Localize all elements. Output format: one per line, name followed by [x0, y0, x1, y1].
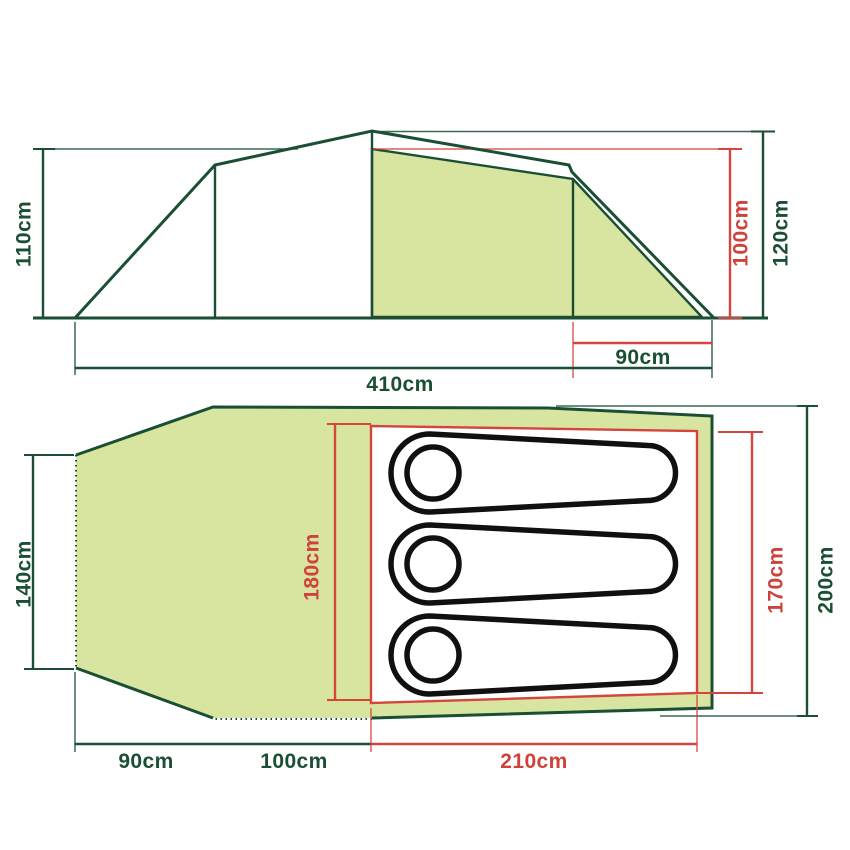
dim-porch-label: 90cm [615, 346, 670, 369]
dim-outer-width-label: 200cm [815, 546, 838, 613]
dim-porch-depth: 90cm [573, 320, 712, 378]
dim-rear-width-label: 140cm [13, 540, 36, 607]
diagram-svg: 110cm 100cm 120cm 90cm 410cm [0, 0, 850, 850]
side-view: 110cm 100cm 120cm 90cm 410cm [13, 131, 793, 396]
dim-inner-height: 100cm [718, 149, 753, 318]
tent-dimensions-diagram: 110cm 100cm 120cm 90cm 410cm [0, 0, 850, 850]
dim-left-height: 110cm [13, 149, 56, 318]
dim-inner-height-label: 100cm [730, 199, 753, 266]
side-inner-bedroom-fill [372, 149, 702, 317]
sleeping-bag-3-hood [407, 629, 459, 681]
dim-left-height-label: 110cm [13, 201, 36, 267]
dim-living-depth-label: 100cm [260, 750, 327, 773]
sleeping-bag-2-hood [407, 538, 459, 590]
dim-outer-height: 120cm [751, 132, 793, 319]
dim-bedroom-depth-label: 210cm [500, 750, 567, 773]
dim-rear-depth-label: 90cm [118, 750, 173, 773]
dim-door-side-width-label: 170cm [765, 546, 788, 613]
dim-rear-width: 140cm [13, 455, 75, 669]
dim-total-length-label: 410cm [366, 373, 433, 396]
dim-inner-width-label: 180cm [301, 533, 324, 600]
sleeping-bags [391, 434, 675, 694]
floor-plan: 140cm 180cm 170cm 200cm [13, 406, 838, 773]
dim-outer-height-label: 120cm [770, 199, 793, 266]
sleeping-bag-1-hood [407, 447, 459, 499]
